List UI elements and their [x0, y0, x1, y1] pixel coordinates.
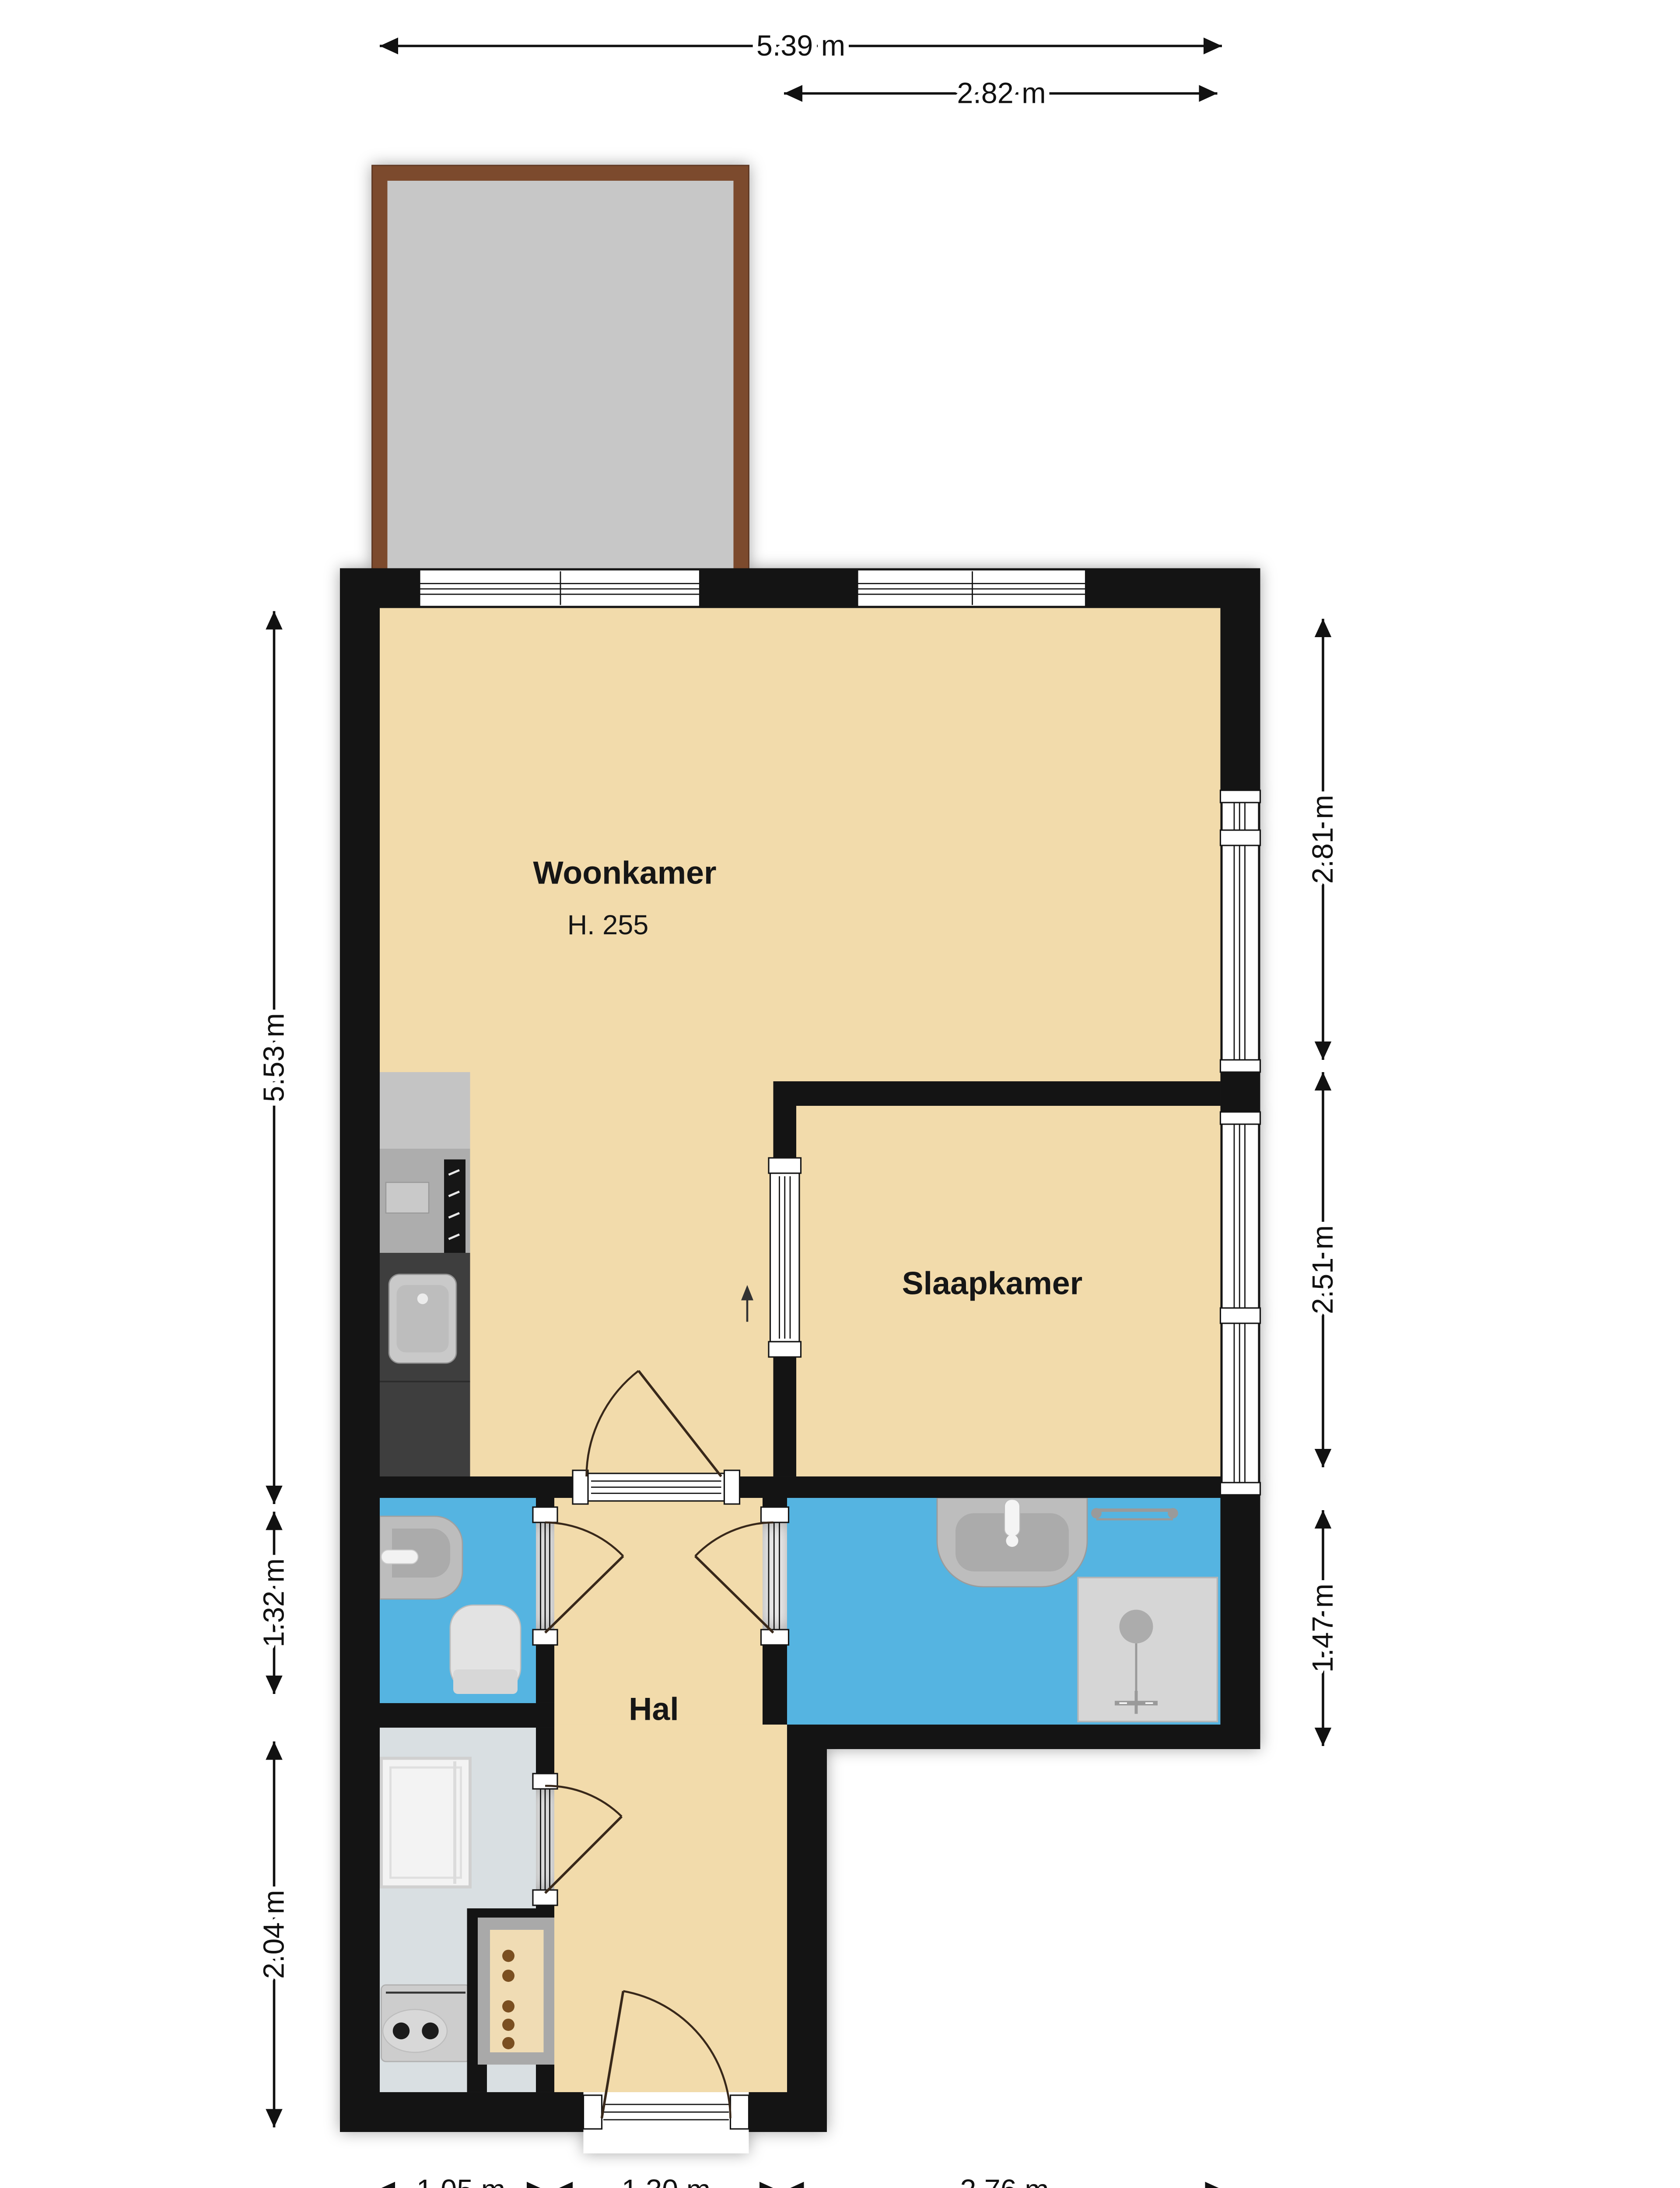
kitchen-faucet-icon: [417, 1294, 428, 1304]
dim-label: 2.04 m: [258, 1890, 290, 1979]
label-hal: Hal: [629, 1690, 679, 1727]
dim-left-3: 2.04 m: [258, 1741, 290, 2127]
room-hal-lower: [554, 1725, 787, 2092]
label-slaapkamer: Slaapkamer: [902, 1265, 1083, 1301]
building: Woonkamer H. 255 Slaapkamer Hal: [340, 165, 1260, 2153]
extractor-hood-icon: [386, 1182, 429, 1213]
door-bedroom: [769, 1158, 801, 1357]
floorplan: Woonkamer H. 255 Slaapkamer Hal 5.39 m 2…: [0, 0, 1680, 2188]
dim-left-1: 5.53 m: [258, 611, 290, 1504]
kitchen-block: [380, 1072, 470, 1478]
dim-label: 2.51 m: [1307, 1225, 1339, 1314]
dim-top-1: 5.39 m: [380, 30, 1222, 62]
toilet-base: [453, 1669, 518, 1694]
dim-top-2: 2.82 m: [784, 77, 1217, 110]
dim-bottom-1: 1.05 m: [377, 2174, 545, 2188]
balcony-floor: [387, 181, 733, 570]
label-woonkamer-height: H. 255: [567, 910, 649, 940]
window-top-left: [420, 570, 700, 607]
balcony: [372, 165, 749, 570]
dim-left-2: 1.32 m: [258, 1511, 290, 1694]
dim-label: 2.82 m: [957, 77, 1046, 110]
meter-cabinet-door: [490, 1930, 543, 2052]
room-woonkamer: [380, 608, 1220, 1081]
dim-bottom-2: 1.30 m: [554, 2174, 778, 2188]
label-woonkamer: Woonkamer: [533, 854, 716, 891]
dim-label: 1.32 m: [258, 1558, 290, 1647]
dim-right-3: 1.47 m: [1307, 1510, 1339, 1746]
window-right-living: [1220, 790, 1260, 1072]
shower-drain: [1119, 1609, 1153, 1643]
dim-label: 5.39 m: [756, 30, 845, 62]
window-top-right: [857, 570, 1085, 607]
washbasin-faucet-knob: [1006, 1535, 1018, 1547]
dim-right-2: 2.51 m: [1307, 1072, 1339, 1467]
front-door-threshold: [583, 2092, 749, 2153]
dim-label: 1.30 m: [622, 2174, 710, 2188]
hand-basin-faucet-icon: [381, 1550, 418, 1564]
washing-machine-icon: [381, 1758, 470, 1887]
dim-label: 1.47 m: [1307, 1584, 1339, 1673]
meter-cabinet-icon: [478, 1918, 554, 2065]
dim-label: 2.76 m: [960, 2174, 1049, 2188]
washbasin-faucet-icon: [1004, 1499, 1020, 1536]
dim-label: 2.81 m: [1307, 795, 1339, 884]
boiler-knob-right: [422, 2023, 438, 2040]
fridge-counter: [380, 1072, 470, 1149]
dim-right-1: 2.81 m: [1307, 619, 1339, 1060]
shower-tray-icon: [1078, 1578, 1217, 1722]
window-right-bedroom: [1220, 1112, 1260, 1495]
boiler-knob-left: [393, 2023, 409, 2040]
dim-bottom-3: 2.76 m: [785, 2174, 1223, 2188]
cooktop-icon: [444, 1159, 465, 1254]
dim-label: 1.05 m: [416, 2174, 505, 2188]
dim-label: 5.53 m: [258, 1013, 290, 1102]
